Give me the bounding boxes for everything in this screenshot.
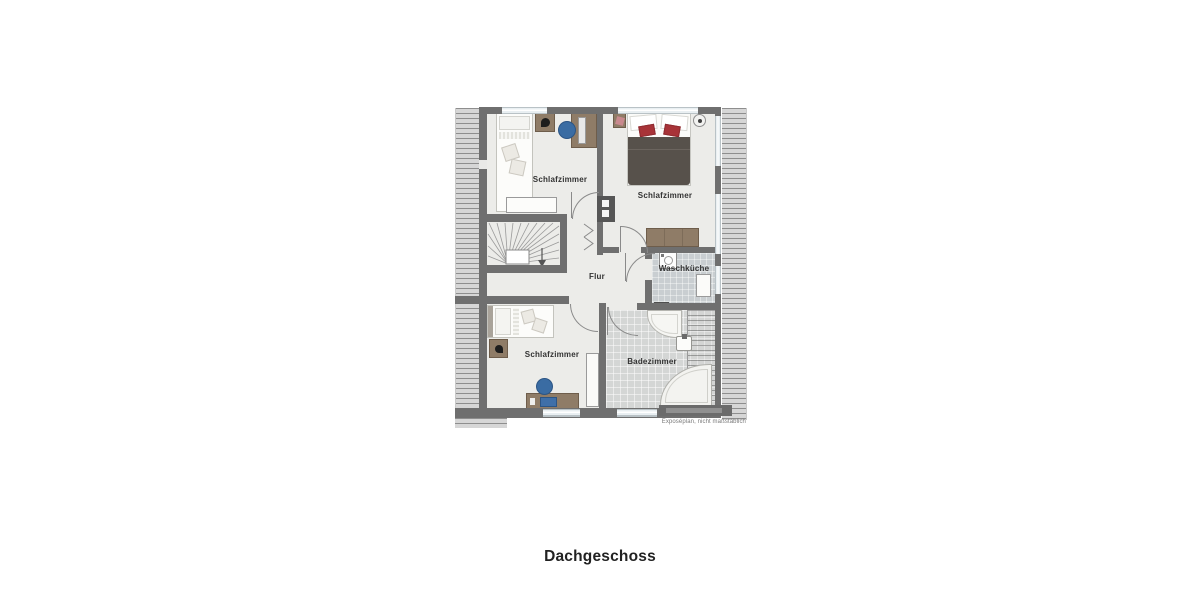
pillow bbox=[495, 308, 511, 335]
headboard bbox=[488, 306, 493, 337]
shower-tray-line bbox=[651, 314, 678, 334]
room-label-schlafzimmer-top-right: Schlafzimmer bbox=[615, 191, 715, 200]
red-pillow bbox=[663, 124, 681, 138]
cushion bbox=[531, 317, 547, 333]
blanket-edge bbox=[499, 132, 530, 139]
window bbox=[618, 107, 698, 114]
red-pillow bbox=[638, 124, 656, 138]
door-leaf bbox=[620, 226, 621, 252]
duvet bbox=[628, 137, 690, 185]
cushion bbox=[509, 159, 527, 177]
washbasin bbox=[676, 336, 692, 351]
stair-landing bbox=[506, 250, 529, 264]
room-label-badezimmer: Badezimmer bbox=[602, 357, 702, 366]
dresser bbox=[646, 228, 699, 247]
table-lamp-icon bbox=[541, 118, 550, 127]
tap bbox=[682, 334, 687, 339]
room-label-schlafzimmer-bottom-left: Schlafzimmer bbox=[502, 350, 602, 359]
plan-disclaimer: Exposéplan, nicht maßstäblich bbox=[662, 419, 746, 425]
desk-item bbox=[530, 398, 535, 405]
window bbox=[715, 194, 721, 254]
door-leaf bbox=[571, 192, 572, 218]
window bbox=[617, 409, 657, 417]
window bbox=[502, 107, 547, 114]
door-leaf bbox=[607, 307, 608, 335]
wall-lamp bbox=[693, 114, 706, 127]
watermark-bar bbox=[659, 405, 732, 416]
decor bbox=[615, 116, 625, 126]
office-chair bbox=[558, 121, 576, 139]
nightstand bbox=[535, 112, 555, 132]
wall-segment-left bbox=[479, 107, 487, 418]
pillow bbox=[499, 116, 530, 130]
office-chair bbox=[536, 378, 553, 395]
room-label-flur: Flur bbox=[547, 272, 647, 281]
knob bbox=[661, 254, 664, 257]
wall-segment-stairs-top bbox=[480, 214, 567, 222]
floor-title: Dachgeschoss bbox=[0, 548, 1200, 566]
floor-plan: Schlafzimmer Schlafzimmer Flur Waschküch… bbox=[454, 106, 746, 430]
single-bed bbox=[487, 305, 554, 338]
wall-segment-stairs-right bbox=[560, 222, 567, 273]
wall-gap bbox=[479, 160, 487, 169]
wall-segment-bedroom3-top bbox=[455, 296, 569, 304]
shaft-opening bbox=[602, 200, 609, 207]
lamp-dot bbox=[698, 119, 702, 123]
wardrobe bbox=[586, 353, 599, 407]
wall-segment-bath-top bbox=[637, 303, 721, 310]
shaft-opening bbox=[602, 210, 609, 217]
window bbox=[715, 116, 721, 166]
watermark-text-strip bbox=[666, 408, 722, 413]
appliance bbox=[696, 274, 711, 297]
seam bbox=[682, 229, 683, 246]
monitor-icon bbox=[578, 117, 586, 144]
sideboard bbox=[506, 197, 557, 213]
laptop-icon bbox=[540, 397, 557, 407]
double-bed bbox=[627, 112, 691, 186]
room-label-schlafzimmer-top-left: Schlafzimmer bbox=[510, 175, 610, 184]
seam bbox=[664, 229, 665, 246]
nightstand bbox=[613, 113, 626, 128]
blanket-edge bbox=[513, 308, 519, 335]
room-label-waschkueche: Waschküche bbox=[634, 264, 734, 273]
folding-door bbox=[584, 224, 593, 250]
duvet-fold bbox=[628, 149, 690, 150]
wall-segment bbox=[597, 247, 619, 253]
wall-segment-waschkueche-left bbox=[645, 280, 652, 304]
window bbox=[543, 409, 580, 417]
